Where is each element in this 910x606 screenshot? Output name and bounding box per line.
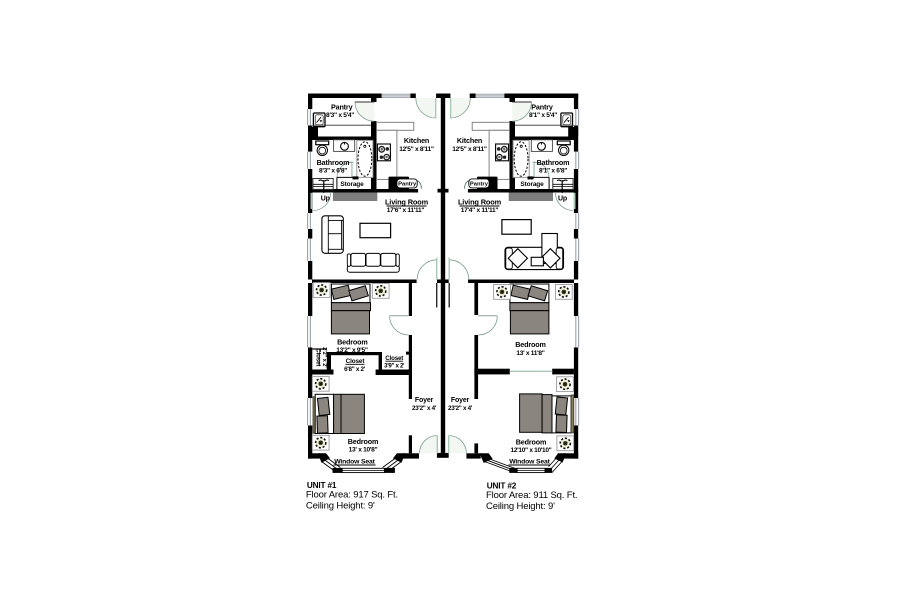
svg-text:Foyer: Foyer — [415, 397, 434, 404]
svg-text:8'1" x 6'8": 8'1" x 6'8" — [539, 168, 567, 175]
svg-text:Bedroom: Bedroom — [515, 340, 546, 349]
svg-text:Bedroom: Bedroom — [348, 437, 379, 446]
svg-text:Bathroom: Bathroom — [537, 158, 570, 167]
svg-text:12'5" x 8'11": 12'5" x 8'11" — [452, 146, 487, 153]
svg-text:Storage: Storage — [520, 181, 544, 188]
svg-text:Kitchen: Kitchen — [457, 136, 482, 145]
svg-text:UNIT #1: UNIT #1 — [307, 481, 337, 490]
svg-text:17'4" x 11'11": 17'4" x 11'11" — [461, 207, 499, 214]
svg-text:Living Room: Living Room — [385, 197, 429, 206]
svg-text:17'6" x 11'11": 17'6" x 11'11" — [387, 207, 425, 214]
svg-text:UNIT #2: UNIT #2 — [487, 482, 517, 491]
svg-text:Floor Area: 917 Sq. Ft.: Floor Area: 917 Sq. Ft. — [306, 490, 398, 501]
svg-text:Bedroom: Bedroom — [516, 437, 547, 446]
svg-text:Closet: Closet — [314, 348, 321, 366]
svg-text:8'3" x 5'4": 8'3" x 5'4" — [326, 112, 354, 119]
svg-text:13' x 10'8": 13' x 10'8" — [349, 447, 378, 454]
svg-text:Ceiling Height: 9': Ceiling Height: 9' — [486, 501, 555, 512]
svg-text:Floor Area: 911 Sq. Ft.: Floor Area: 911 Sq. Ft. — [486, 490, 577, 501]
svg-text:Up: Up — [558, 196, 567, 203]
svg-text:Pantry: Pantry — [531, 102, 553, 111]
svg-text:Kitchen: Kitchen — [404, 136, 429, 145]
svg-text:Pantry: Pantry — [331, 102, 353, 111]
svg-text:13' x 11'8": 13' x 11'8" — [516, 350, 544, 357]
svg-text:Pantry: Pantry — [398, 182, 417, 188]
svg-text:13'2" x 9'5": 13'2" x 9'5" — [336, 347, 368, 354]
svg-text:Window Seat: Window Seat — [509, 459, 550, 466]
svg-text:23'2" x 4': 23'2" x 4' — [448, 405, 473, 412]
svg-text:Foyer: Foyer — [451, 397, 470, 404]
svg-text:Up: Up — [321, 196, 330, 203]
svg-text:Window Seat: Window Seat — [334, 459, 375, 466]
svg-text:23'2" x 4': 23'2" x 4' — [412, 405, 437, 412]
svg-text:Storage: Storage — [340, 181, 364, 188]
svg-text:8'1" x 5'4": 8'1" x 5'4" — [529, 112, 557, 119]
svg-text:8'3" x 6'8": 8'3" x 6'8" — [319, 168, 347, 175]
svg-text:Bathroom: Bathroom — [317, 158, 350, 167]
svg-text:Bedroom: Bedroom — [337, 337, 368, 346]
svg-text:Living Room: Living Room — [458, 197, 502, 206]
svg-text:6'8" x 2': 6'8" x 2' — [344, 366, 366, 373]
svg-text:3'9" x 2': 3'9" x 2' — [384, 363, 405, 370]
svg-text:12'5" x 8'11": 12'5" x 8'11" — [399, 146, 434, 153]
svg-text:Pantry: Pantry — [470, 182, 489, 188]
svg-text:2'2" x 2': 2'2" x 2' — [321, 347, 327, 368]
svg-text:Ceiling Height: 9': Ceiling Height: 9' — [306, 501, 375, 512]
svg-text:12'10" x 10'10": 12'10" x 10'10" — [511, 447, 552, 454]
